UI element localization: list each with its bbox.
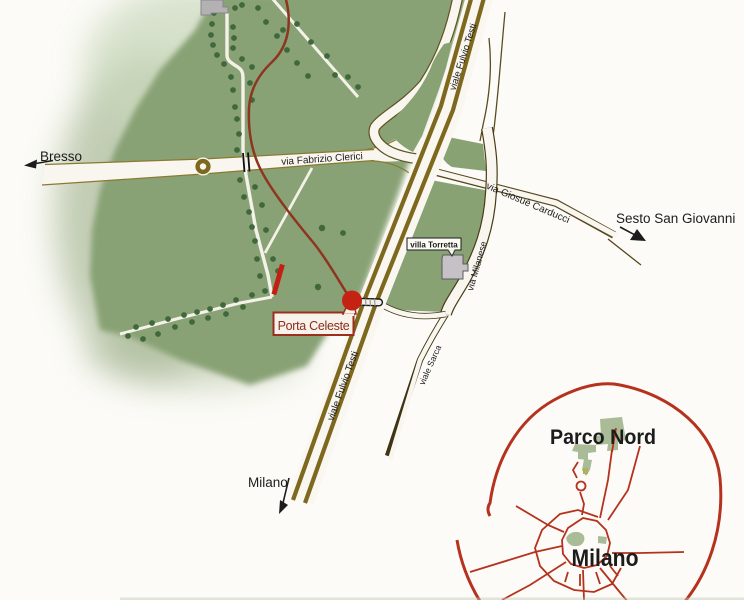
- svg-text:villa Torretta: villa Torretta: [410, 241, 458, 250]
- svg-text:Milano: Milano: [572, 545, 639, 572]
- svg-text:Milano: Milano: [248, 475, 288, 490]
- svg-text:Porta Celeste: Porta Celeste: [278, 319, 350, 333]
- svg-text:Parco Nord: Parco Nord: [550, 425, 656, 449]
- svg-text:Sesto San Giovanni: Sesto San Giovanni: [616, 211, 735, 226]
